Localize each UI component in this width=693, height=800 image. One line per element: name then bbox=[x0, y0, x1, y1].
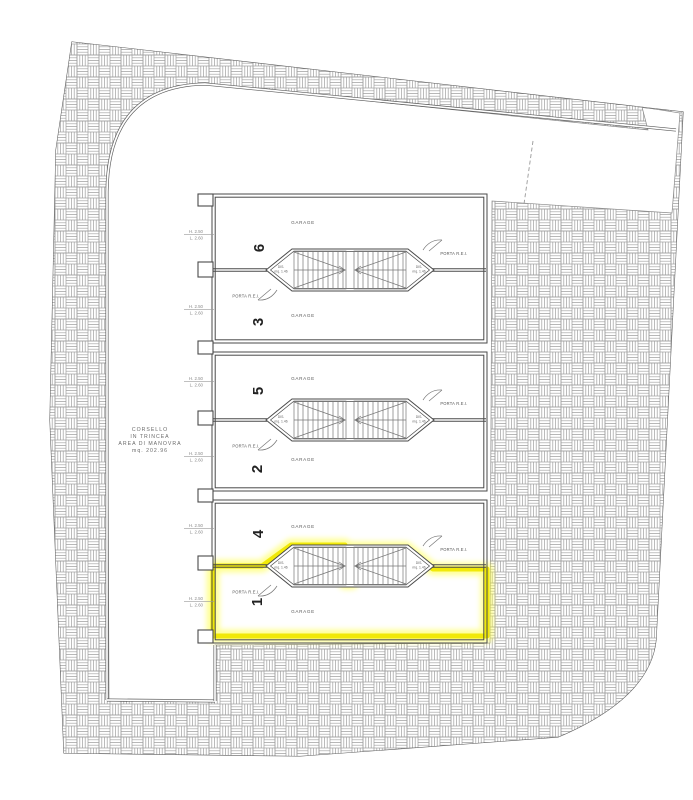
corsello-end-wall-inner bbox=[107, 700, 215, 701]
garage-label-1: GARAGE bbox=[291, 609, 315, 614]
floorplan-canvas: DIS. mq. 1.46 DIS. mq. 1.46 PORTA R.E.I.… bbox=[0, 0, 693, 800]
unit-number-2[interactable]: 2 bbox=[249, 465, 266, 473]
garage-label-2: GARAGE bbox=[291, 457, 315, 462]
unit-number-4[interactable]: 4 bbox=[250, 529, 267, 538]
wall-pier bbox=[198, 194, 213, 206]
wall-pier bbox=[198, 556, 213, 570]
garage-label-6: GARAGE bbox=[291, 220, 315, 225]
unit-number-1[interactable]: 1 bbox=[249, 598, 266, 606]
floorplan-svg: DIS. mq. 1.46 DIS. mq. 1.46 PORTA R.E.I.… bbox=[0, 0, 693, 800]
unit-number-3[interactable]: 3 bbox=[250, 318, 267, 326]
garage-label-4: GARAGE bbox=[291, 524, 315, 529]
garage-label-5: GARAGE bbox=[291, 376, 315, 381]
corsello-line4: mq. 202.96 bbox=[132, 448, 168, 454]
wall-pier bbox=[198, 630, 213, 643]
wall-pier bbox=[198, 341, 213, 354]
garage-label-3: GARAGE bbox=[291, 313, 315, 318]
corsello-line1: CORSELLO bbox=[132, 427, 168, 433]
wall-pier bbox=[198, 262, 213, 277]
corsello-line3: AREA DI MANOVRA bbox=[118, 441, 181, 447]
corsello-line2: IN TRINCEA bbox=[130, 434, 169, 440]
wall-pier bbox=[198, 489, 213, 502]
unit-number-5[interactable]: 5 bbox=[250, 387, 267, 395]
wall-pier bbox=[198, 411, 213, 425]
unit-number-6[interactable]: 6 bbox=[251, 244, 268, 252]
